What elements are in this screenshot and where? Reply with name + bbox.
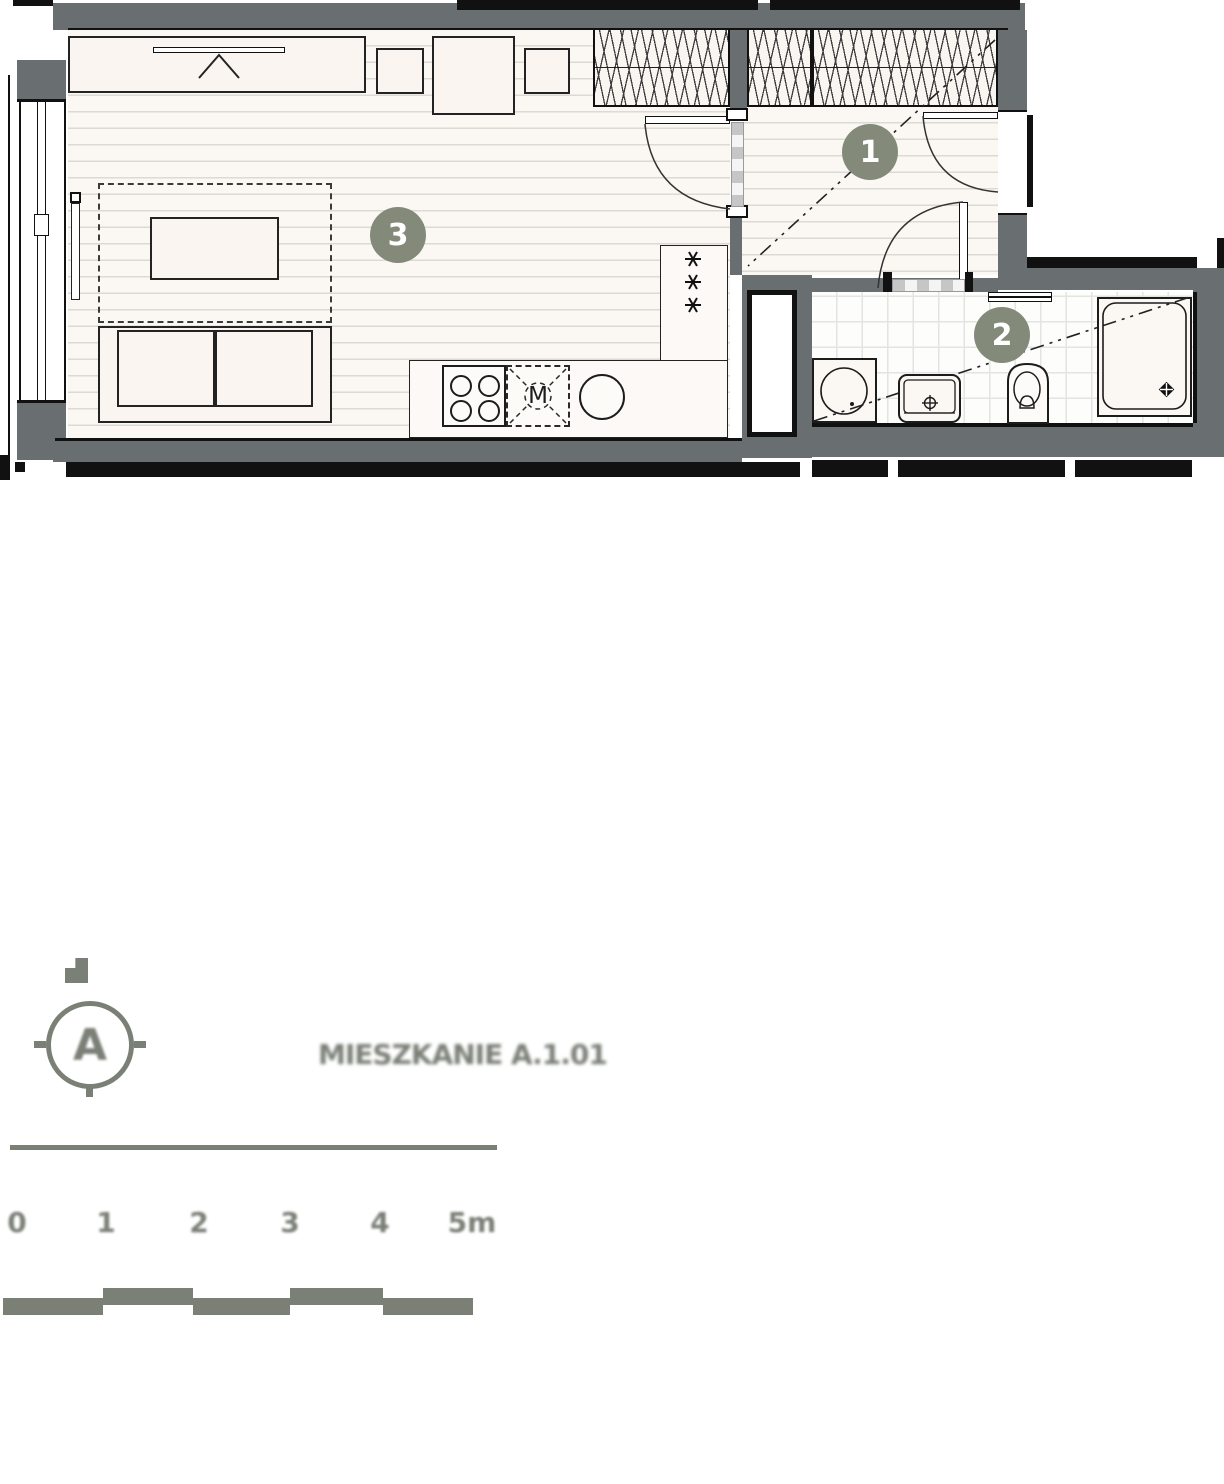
wall-room-bottom xyxy=(53,441,742,462)
tv-unit xyxy=(68,36,366,93)
wall-left-top-block xyxy=(17,60,66,102)
section-bar-topleft xyxy=(13,0,53,6)
sofa-cushion-right xyxy=(215,330,313,407)
wardrobe-hall-large xyxy=(812,28,998,107)
installation-shaft xyxy=(747,290,797,437)
wall-right-pillar xyxy=(998,30,1027,110)
room-marker-3: 3 xyxy=(370,207,426,263)
wall-edge-topright xyxy=(1027,257,1197,268)
radiator-valve-icon xyxy=(70,192,81,203)
door-threshold-bath xyxy=(892,279,965,292)
scale-label-0: 0 xyxy=(7,1206,26,1239)
cabinet-small-1 xyxy=(376,48,424,94)
window-mullion xyxy=(34,214,49,236)
section-bar-bottom-4 xyxy=(1075,460,1192,477)
meter-label: M xyxy=(506,365,570,427)
washing-machine xyxy=(812,358,877,423)
wall-mid-pillar xyxy=(730,10,747,112)
section-bar-top-2 xyxy=(770,0,1020,10)
wardrobe-rail xyxy=(595,67,728,69)
floorplan-page: M xyxy=(0,0,1224,1484)
scale-bar-segment xyxy=(103,1288,193,1305)
scale-label-1: 1 xyxy=(96,1206,115,1239)
stove xyxy=(442,365,506,427)
section-bar-bottom-1 xyxy=(66,462,800,477)
scale-label-2: 2 xyxy=(189,1206,208,1239)
wardrobe-hall-small xyxy=(747,28,812,107)
door-threshold-living xyxy=(731,122,744,207)
window-left xyxy=(19,102,66,400)
compass-letter: A xyxy=(73,1020,107,1071)
window-glazing-line xyxy=(37,102,46,400)
scale-bar-segment xyxy=(193,1298,290,1315)
coffee-table xyxy=(150,217,279,280)
room-marker-1: 1 xyxy=(842,124,898,180)
room-number: 2 xyxy=(992,318,1013,353)
scale-label-4: 4 xyxy=(370,1206,389,1239)
radiator xyxy=(71,203,80,300)
wall-edge-bath-right xyxy=(1193,292,1197,423)
sofa-cushion-left xyxy=(117,330,215,407)
scale-bar-segment xyxy=(3,1298,103,1315)
cabinet-small-2 xyxy=(524,48,570,94)
door-frame-top xyxy=(726,108,748,121)
room-number: 1 xyxy=(860,135,881,170)
scale-label-5m: 5m xyxy=(448,1206,497,1239)
section-stub-right xyxy=(1217,238,1224,268)
scale-bar-segment xyxy=(383,1298,473,1315)
wall-bath-bottom xyxy=(812,427,1193,457)
unit-title: MIESZKANIE A.1.01 xyxy=(318,1038,618,1071)
entrance-opening xyxy=(998,110,1027,215)
door-leaf-living xyxy=(645,116,730,124)
tv-screen xyxy=(153,47,285,53)
section-bar-bottom-2 xyxy=(812,460,888,477)
compass-tick-west xyxy=(34,1041,46,1048)
wall-edge-bath-bottom xyxy=(812,423,1193,427)
wall-right-outer xyxy=(1193,290,1224,457)
compass-icon: A xyxy=(46,1001,134,1089)
section-bar-top-1 xyxy=(457,0,758,10)
scale-label-3: 3 xyxy=(280,1206,299,1239)
wardrobe-rail xyxy=(749,67,810,69)
wall-divider-lower xyxy=(730,212,742,275)
floorplan: M xyxy=(0,0,1224,490)
scale-bar-segment xyxy=(290,1288,383,1305)
compass-tick-south xyxy=(86,1085,93,1097)
cabinet-fridge xyxy=(432,36,515,115)
bath-door-post-right xyxy=(965,272,973,292)
section-bit-bottomleft-2 xyxy=(15,462,25,472)
compass-tick-east xyxy=(134,1041,146,1048)
section-bar-bottom-3 xyxy=(898,460,1065,477)
entrance-outer-edge xyxy=(1027,115,1033,207)
balcony-edge-line xyxy=(8,75,10,470)
room-marker-2: 2 xyxy=(974,307,1030,363)
wardrobe-rail xyxy=(814,67,996,69)
wall-edge-room-bottom xyxy=(55,438,742,441)
north-marker-icon xyxy=(65,958,88,983)
legend: A MIESZKANIE A.1.01 0 1 2 3 4 5m xyxy=(0,940,1224,1484)
entrance-door-leaf xyxy=(923,112,998,119)
bathtub xyxy=(1097,297,1192,417)
divider-line xyxy=(10,1145,497,1150)
bath-door-post-left xyxy=(883,272,892,292)
wall-topright-band xyxy=(998,268,1224,290)
section-bit-bottomleft-1 xyxy=(0,455,10,480)
room-number: 3 xyxy=(388,218,409,253)
wardrobe-living xyxy=(593,28,730,107)
bathroom-shelf xyxy=(988,292,1052,302)
